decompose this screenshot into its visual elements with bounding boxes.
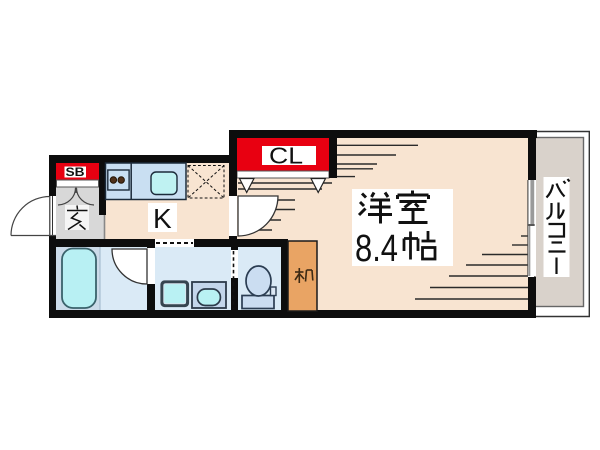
svg-text:CL: CL [269,143,303,169]
svg-text:8.4: 8.4 [355,228,398,270]
svg-text:SB: SB [66,165,85,179]
svg-text:K: K [153,203,172,234]
